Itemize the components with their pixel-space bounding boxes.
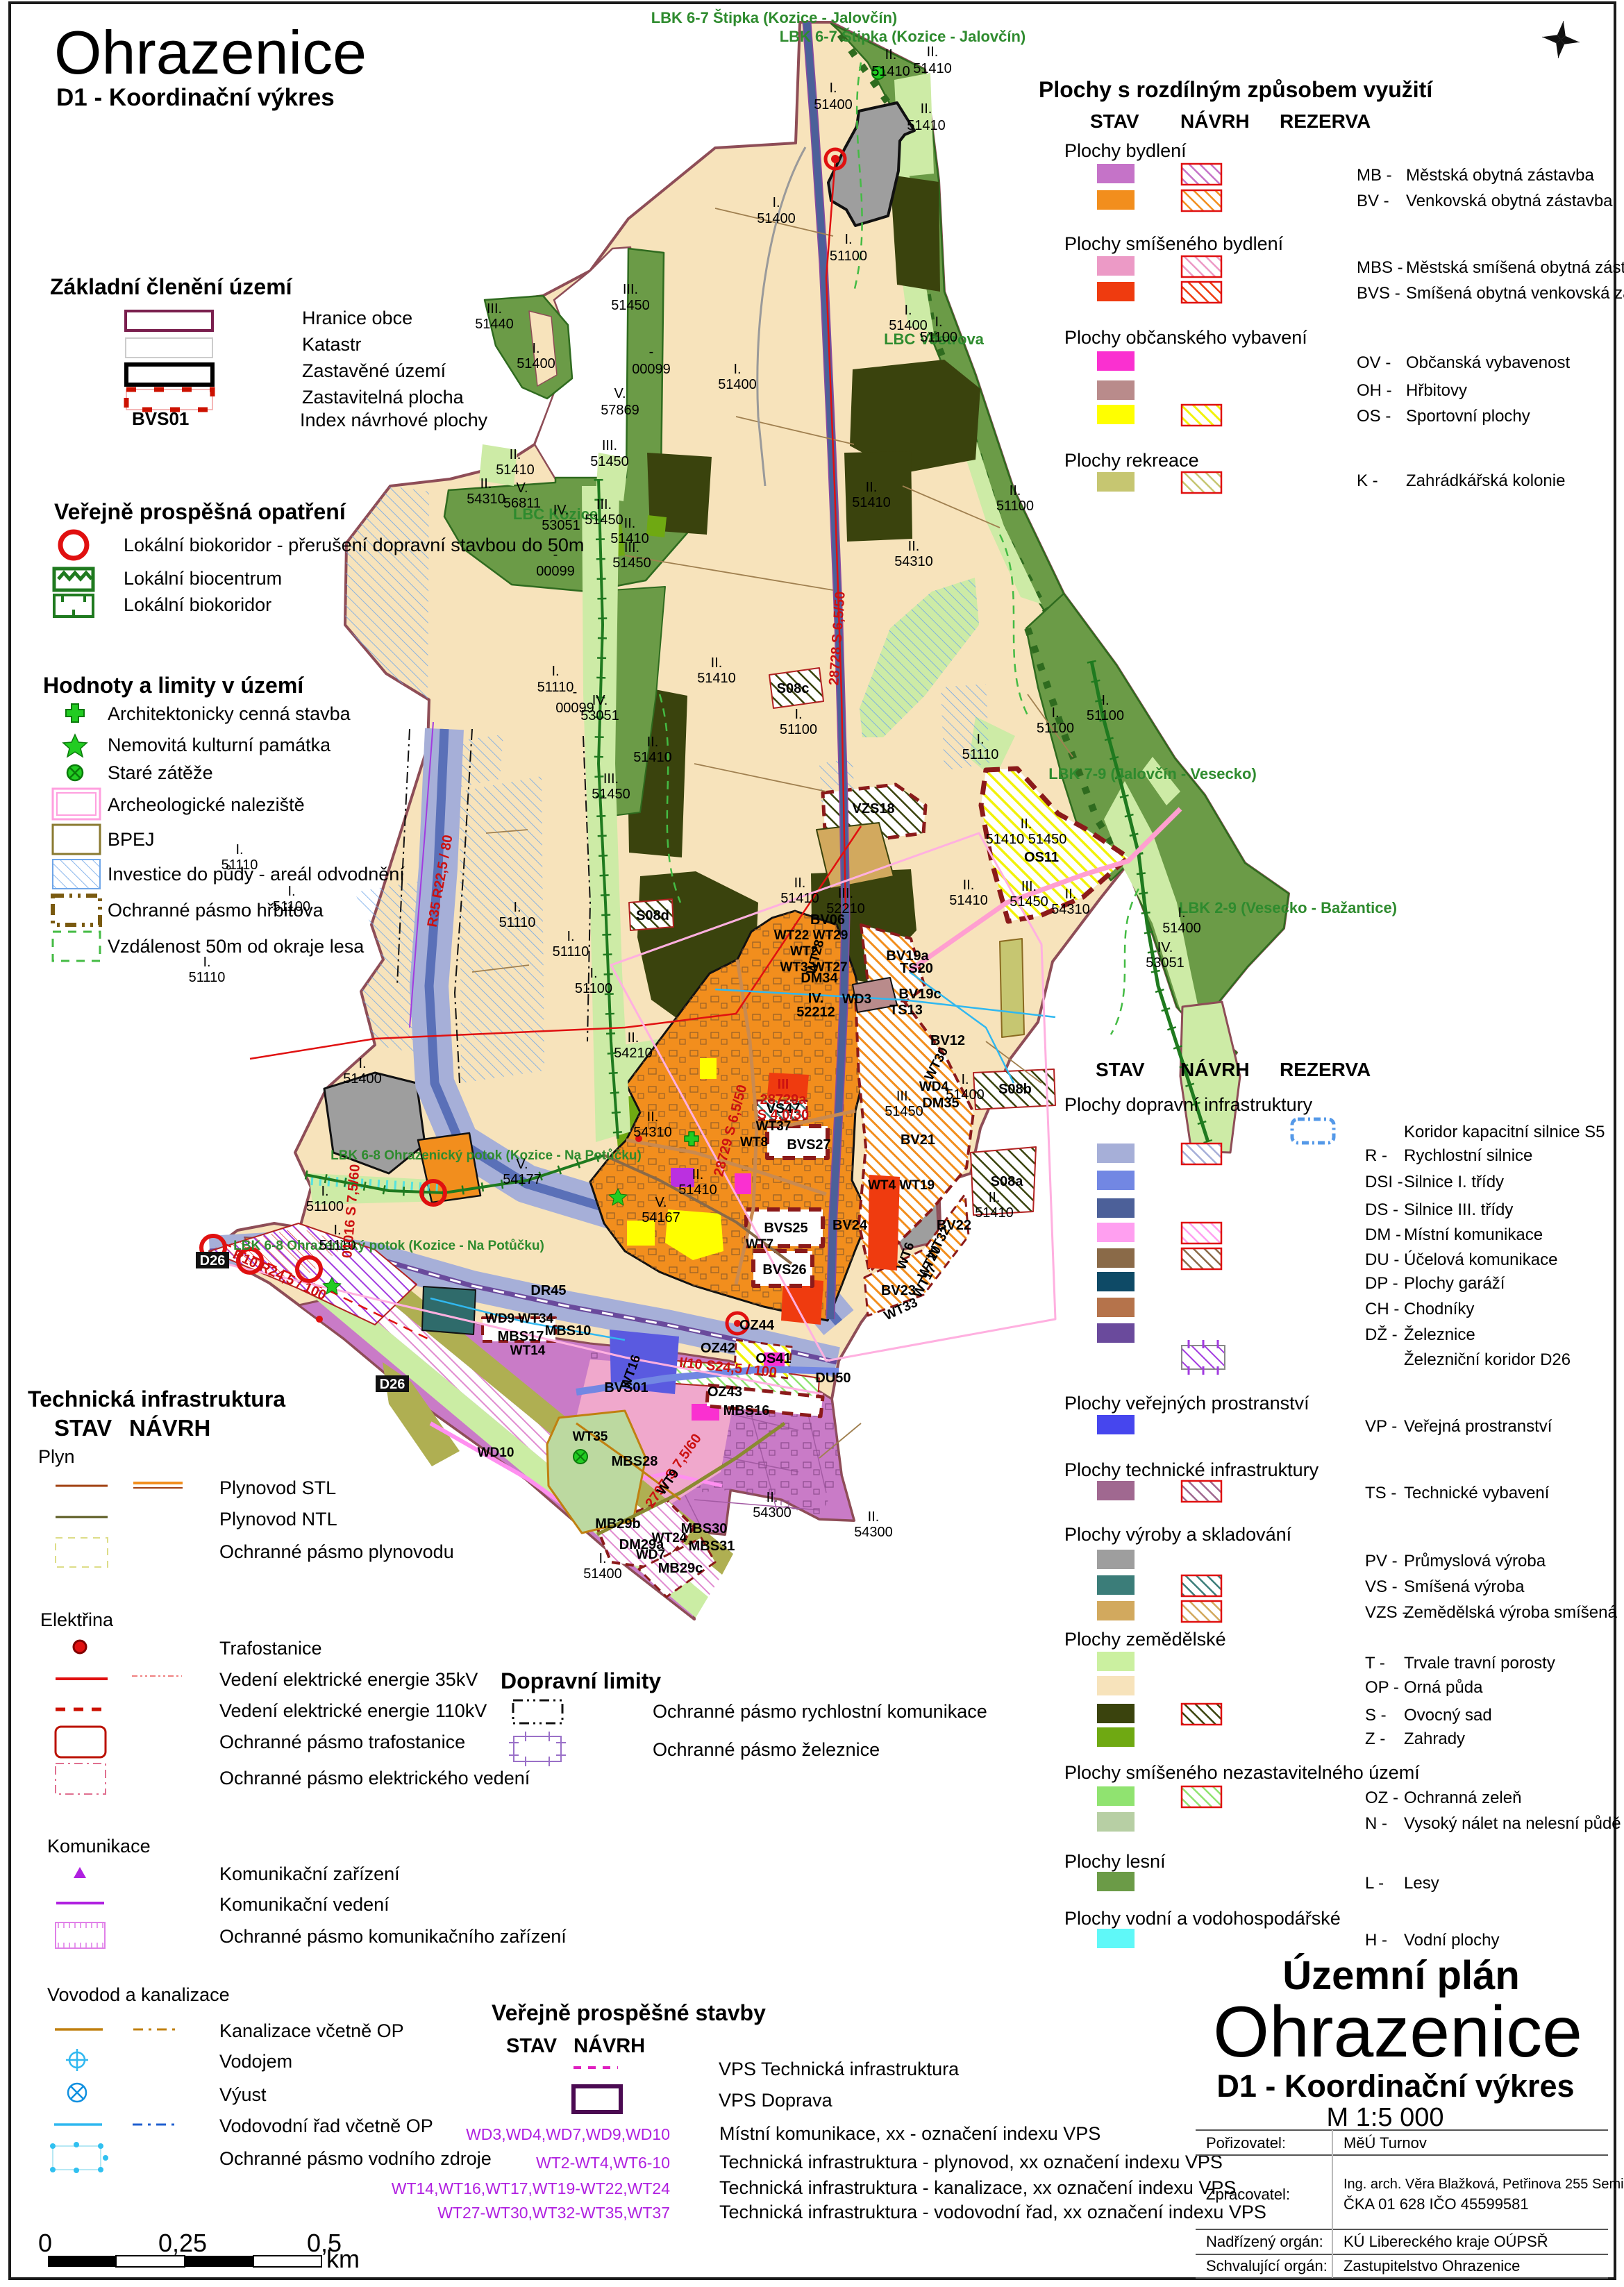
svg-text:D26: D26	[200, 1253, 226, 1268]
svg-text:II.: II.	[628, 1030, 639, 1046]
svg-text:Technická infrastruktura - vod: Technická infrastruktura - vodovodní řad…	[719, 2202, 1266, 2222]
svg-text:MB29b: MB29b	[595, 1516, 641, 1532]
svg-text:51400: 51400	[1162, 921, 1201, 936]
svg-text:Plochy zemědělské: Plochy zemědělské	[1064, 1629, 1226, 1650]
svg-text:Orná půda: Orná půda	[1404, 1678, 1483, 1697]
svg-text:III.: III.	[623, 282, 638, 297]
svg-text:Lokální biokoridor: Lokální biokoridor	[124, 594, 271, 615]
svg-text:53051: 53051	[1146, 955, 1184, 971]
svg-text:S08d: S08d	[636, 908, 669, 923]
svg-text:-: -	[573, 685, 578, 700]
svg-text:51110: 51110	[189, 970, 226, 985]
svg-text:II.: II.	[692, 1167, 704, 1182]
svg-text:III.: III.	[896, 1089, 912, 1104]
svg-text:51450: 51450	[611, 298, 650, 313]
svg-text:DSI -: DSI -	[1365, 1173, 1403, 1191]
svg-text:51400: 51400	[343, 1071, 382, 1087]
svg-text:BVS25: BVS25	[764, 1221, 807, 1236]
svg-text:MBS30: MBS30	[681, 1521, 728, 1536]
svg-text:Plynovod NTL: Plynovod NTL	[219, 1509, 337, 1530]
svg-text:WT4 WT19: WT4 WT19	[868, 1178, 935, 1193]
svg-text:Plochy rekreace: Plochy rekreace	[1064, 450, 1199, 471]
svg-text:Základní členění území: Základní členění území	[50, 274, 293, 299]
svg-text:II.: II.	[866, 480, 878, 495]
svg-text:Hřbitovy: Hřbitovy	[1406, 381, 1467, 400]
svg-text:00099: 00099	[536, 564, 575, 579]
svg-text:I.: I.	[358, 1056, 366, 1071]
svg-text:Komunikační zařízení: Komunikační zařízení	[219, 1863, 400, 1884]
svg-text:Ochranné pásmo železnice: Ochranné pásmo železnice	[653, 1739, 880, 1760]
svg-text:TS20: TS20	[900, 961, 933, 976]
svg-text:Staré zátěže: Staré zátěže	[108, 762, 213, 783]
svg-text:I.: I.	[1051, 705, 1059, 721]
svg-text:NÁVRH: NÁVRH	[1180, 1059, 1250, 1080]
svg-text:OZ44: OZ44	[739, 1318, 775, 1333]
svg-text:D1 - Koordinační výkres: D1 - Koordinační výkres	[1216, 2068, 1574, 2104]
svg-text:Plochy smíšeného nezastaviteln: Plochy smíšeného nezastavitelného území	[1064, 1762, 1420, 1783]
svg-text:Trvale travní porosty: Trvale travní porosty	[1404, 1654, 1555, 1673]
svg-text:I.: I.	[321, 1184, 328, 1199]
svg-text:54167: 54167	[642, 1210, 680, 1225]
svg-text:BVS01: BVS01	[132, 408, 189, 429]
svg-text:53051: 53051	[542, 518, 580, 533]
svg-text:Ochranné pásmo hřbitova: Ochranné pásmo hřbitova	[108, 900, 324, 921]
svg-text:D26: D26	[380, 1377, 405, 1392]
svg-text:III.: III.	[603, 771, 619, 787]
svg-text:0: 0	[38, 2229, 52, 2257]
svg-text:Vysoký nálet na nelesní půdě: Vysoký nálet na nelesní půdě	[1404, 1814, 1621, 1833]
svg-text:OP -: OP -	[1365, 1678, 1399, 1697]
svg-text:III.: III.	[1021, 879, 1037, 894]
svg-text:I.: I.	[532, 341, 539, 356]
svg-text:L -: L -	[1365, 1874, 1384, 1893]
svg-text:51410: 51410	[496, 462, 535, 478]
svg-text:Účelová komunikace: Účelová komunikace	[1404, 1250, 1557, 1269]
svg-text:PV -: PV -	[1365, 1552, 1398, 1570]
svg-text:I.: I.	[598, 1551, 606, 1566]
svg-text:M 1:5 000: M 1:5 000	[1327, 2103, 1444, 2132]
svg-text:Komunikace: Komunikace	[47, 1836, 151, 1857]
svg-text:II.: II.	[1021, 816, 1032, 832]
svg-text:I.: I.	[513, 900, 521, 915]
svg-text:Rychlostní silnice: Rychlostní silnice	[1404, 1146, 1532, 1165]
svg-text:VZS -: VZS -	[1365, 1603, 1407, 1622]
svg-text:51110: 51110	[553, 944, 589, 960]
svg-text:Plochy garáží: Plochy garáží	[1404, 1274, 1505, 1293]
svg-text:R -: R -	[1365, 1146, 1387, 1165]
svg-text:Technická infrastruktura - kan: Technická infrastruktura - kanalizace, x…	[719, 2177, 1236, 2198]
svg-text:II.: II.	[908, 539, 920, 554]
svg-text:I.: I.	[961, 1072, 969, 1087]
svg-text:I.: I.	[844, 232, 852, 247]
svg-text:I.: I.	[203, 955, 210, 970]
svg-text:Vzdálenost 50m od okraje lesa: Vzdálenost 50m od okraje lesa	[108, 936, 365, 957]
svg-text:51400: 51400	[889, 318, 928, 333]
svg-text:Průmyslová výroba: Průmyslová výroba	[1404, 1552, 1546, 1570]
svg-text:BV -: BV -	[1357, 192, 1389, 210]
svg-text:DS -: DS -	[1365, 1200, 1398, 1219]
svg-text:MěÚ Turnov: MěÚ Turnov	[1343, 2134, 1427, 2152]
svg-text:I.: I.	[551, 664, 559, 679]
svg-text:51440: 51440	[475, 317, 514, 332]
svg-text:BV06: BV06	[810, 912, 845, 928]
svg-text:Nemovitá kulturní památka: Nemovitá kulturní památka	[108, 735, 331, 755]
svg-text:I.: I.	[1101, 693, 1109, 708]
svg-text:Hodnoty a limity v území: Hodnoty a limity v území	[43, 673, 304, 698]
svg-text:Plochy technické infrastruktur: Plochy technické infrastruktury	[1064, 1459, 1319, 1480]
svg-text:II.: II.	[647, 1109, 659, 1125]
svg-text:Ochranné pásmo rychlostní komu: Ochranné pásmo rychlostní komunikace	[653, 1701, 987, 1722]
svg-text:III.: III.	[487, 301, 502, 317]
svg-text:51410: 51410	[871, 64, 910, 79]
svg-text:LBK 6-7 Štipka (Kozice - Jalov: LBK 6-7 Štipka (Kozice - Jalovčín)	[651, 9, 898, 26]
svg-text:Zastavěné území: Zastavěné území	[302, 360, 446, 381]
svg-text:Plochy lesní: Plochy lesní	[1064, 1851, 1166, 1872]
svg-text:Plochy bydlení: Plochy bydlení	[1064, 140, 1187, 161]
svg-text:II.: II.	[963, 878, 975, 893]
svg-text:I.: I.	[904, 303, 912, 318]
svg-text:Zemědělská výroba smíšená: Zemědělská výroba smíšená	[1404, 1603, 1617, 1622]
svg-text:Zahrady: Zahrady	[1404, 1729, 1465, 1748]
svg-text:OZ42: OZ42	[701, 1341, 735, 1356]
svg-text:51410: 51410	[697, 671, 736, 686]
svg-text:V.: V.	[655, 1195, 667, 1210]
svg-text:II.: II.	[1065, 887, 1077, 902]
svg-text:MBS31: MBS31	[689, 1539, 735, 1554]
svg-text:Místní komunikace: Místní komunikace	[1404, 1225, 1543, 1244]
svg-text:51100: 51100	[780, 722, 817, 737]
svg-text:III.: III.	[596, 497, 612, 512]
svg-text:Výust: Výust	[219, 2084, 267, 2105]
svg-text:51410: 51410	[780, 891, 819, 906]
svg-text:Místní komunikace, xx - označe: Místní komunikace, xx - označení indexu …	[719, 2123, 1100, 2144]
svg-text:DP -: DP -	[1365, 1274, 1398, 1293]
svg-text:51100: 51100	[830, 249, 867, 264]
svg-text:Venkovská obytná zástavba: Venkovská obytná zástavba	[1406, 192, 1613, 210]
svg-text:Ochranné pásmo komunikačního z: Ochranné pásmo komunikačního zařízení	[219, 1926, 567, 1947]
svg-text:LBK 7-9 (Jalovčín - Vesecko): LBK 7-9 (Jalovčín - Vesecko)	[1048, 765, 1257, 782]
svg-text:51100: 51100	[575, 981, 612, 996]
svg-text:51400: 51400	[814, 97, 853, 112]
svg-text:OV -: OV -	[1357, 353, 1391, 372]
svg-text:I.: I.	[567, 929, 574, 944]
svg-text:V.: V.	[516, 480, 528, 496]
svg-text:Vedení elektrické energie 35k: Vedení elektrické energie 35kV	[219, 1669, 478, 1690]
svg-text:Plochy smíšeného bydlení: Plochy smíšeného bydlení	[1064, 233, 1284, 254]
svg-text:00099: 00099	[632, 362, 671, 377]
svg-text:II.: II.	[1010, 483, 1021, 499]
svg-text:Zpracovatel:: Zpracovatel:	[1206, 2186, 1290, 2203]
svg-text:Ohrazenice: Ohrazenice	[54, 18, 367, 87]
svg-text:BVS26: BVS26	[762, 1262, 806, 1277]
svg-text:Železnice: Železnice	[1404, 1325, 1475, 1344]
svg-text:51100: 51100	[996, 499, 1034, 514]
svg-text:Ochranná zeleň: Ochranná zeleň	[1404, 1788, 1521, 1807]
svg-text:MBS17: MBS17	[498, 1329, 544, 1344]
svg-text:V.: V.	[614, 386, 626, 401]
svg-text:Plynovod STL: Plynovod STL	[219, 1477, 336, 1498]
svg-text:WD3,WD4,WD7,WD9,WD10: WD3,WD4,WD7,WD9,WD10	[466, 2125, 670, 2143]
svg-text:I.: I.	[794, 707, 802, 722]
svg-text:Veřejně prospěšná opatření: Veřejně prospěšná opatření	[54, 499, 346, 524]
svg-text:I.: I.	[935, 315, 942, 330]
svg-text:51400: 51400	[757, 211, 796, 226]
svg-text:Plyn: Plyn	[38, 1446, 75, 1467]
svg-text:I.: I.	[333, 1223, 341, 1238]
svg-text:VPS Technická infrastruktura: VPS Technická infrastruktura	[719, 2059, 960, 2079]
svg-text:WD9 WT34: WD9 WT34	[485, 1312, 554, 1326]
svg-text:II.: II.	[921, 101, 932, 117]
svg-text:T -: T -	[1365, 1654, 1385, 1673]
svg-text:DR45: DR45	[530, 1283, 566, 1298]
svg-text:Schvalující orgán:: Schvalující orgán:	[1206, 2257, 1328, 2275]
svg-text:Ohrazenice: Ohrazenice	[1213, 1992, 1582, 2072]
svg-text:Ochranné pásmo elektrického ve: Ochranné pásmo elektrického vedení	[219, 1768, 530, 1788]
svg-text:NÁVRH: NÁVRH	[129, 1415, 210, 1441]
svg-text:Městská smíšená obytná zástavb: Městská smíšená obytná zástavba	[1406, 258, 1624, 277]
svg-text:II.: II.	[868, 1509, 880, 1525]
svg-text:IV.: IV.	[1157, 940, 1173, 955]
svg-text:Nadřízený orgán:: Nadřízený orgán:	[1206, 2233, 1323, 2250]
svg-text:Veřejně prospěšné stavby: Veřejně prospěšné stavby	[492, 2000, 766, 2025]
svg-text:I.: I.	[235, 842, 243, 857]
svg-text:DU50: DU50	[815, 1371, 851, 1386]
svg-text:51450: 51450	[585, 512, 623, 528]
svg-text:Občanská vybavenost: Občanská vybavenost	[1406, 353, 1570, 372]
svg-text:MB -: MB -	[1357, 166, 1392, 185]
svg-text:I.: I.	[976, 732, 984, 747]
svg-text:OS -: OS -	[1357, 407, 1391, 426]
svg-text:51110: 51110	[537, 680, 574, 695]
svg-text:Komunikační vedení: Komunikační vedení	[219, 1894, 390, 1915]
svg-text:BV24: BV24	[832, 1218, 868, 1233]
svg-text:I.: I.	[589, 966, 597, 981]
svg-text:Dopravní limity: Dopravní limity	[501, 1668, 661, 1693]
svg-text:OS11: OS11	[1024, 850, 1059, 865]
svg-text:54177: 54177	[503, 1172, 542, 1187]
svg-text:Lokální biocentrum: Lokální biocentrum	[124, 568, 282, 589]
svg-text:51410: 51410	[678, 1182, 717, 1198]
svg-text:BV19c: BV19c	[898, 987, 941, 1002]
svg-text:Archeologické naleziště: Archeologické naleziště	[108, 794, 305, 815]
svg-text:Vodní plochy: Vodní plochy	[1404, 1931, 1499, 1950]
svg-text:S08c: S08c	[777, 681, 810, 696]
svg-text:54310: 54310	[894, 554, 933, 569]
svg-text:52212: 52212	[796, 1005, 835, 1020]
svg-text:54210: 54210	[614, 1046, 653, 1061]
svg-text:53051: 53051	[580, 708, 619, 723]
svg-text:MB29c: MB29c	[658, 1561, 703, 1576]
svg-text:II.: II.	[510, 447, 521, 462]
svg-text:Plochy veřejných prostranství: Plochy veřejných prostranství	[1064, 1393, 1309, 1414]
svg-text:WT24: WT24	[652, 1531, 687, 1545]
svg-text:BVS27: BVS27	[787, 1137, 830, 1153]
svg-text:II.: II.	[711, 655, 723, 671]
svg-text:Investice do půdy - areál odvo: Investice do půdy - areál odvodnění	[108, 864, 405, 885]
svg-text:STAV: STAV	[54, 1415, 112, 1441]
svg-text:51100: 51100	[1037, 721, 1074, 736]
svg-text:II.: II.	[989, 1190, 1001, 1205]
svg-text:VPS Doprava: VPS Doprava	[719, 2090, 833, 2111]
svg-text:CH -: CH -	[1365, 1300, 1399, 1318]
svg-text:Chodníky: Chodníky	[1404, 1300, 1474, 1318]
svg-text:I.: I.	[733, 362, 741, 377]
svg-text:V.: V.	[516, 1157, 528, 1172]
svg-text:K -: K -	[1357, 471, 1378, 490]
svg-text:Plochy dopravní infrastruktury: Plochy dopravní infrastruktury	[1064, 1094, 1313, 1115]
svg-text:51410: 51410	[949, 893, 988, 908]
svg-text:56811: 56811	[503, 496, 541, 511]
svg-text:STAV: STAV	[1090, 110, 1139, 132]
svg-text:WT8: WT8	[740, 1135, 768, 1150]
svg-text:Trafostanice: Trafostanice	[219, 1638, 322, 1659]
svg-text:IV.: IV.	[553, 503, 569, 518]
svg-text:III.: III.	[602, 438, 617, 453]
svg-text:57869: 57869	[601, 403, 639, 418]
svg-text:51450: 51450	[590, 454, 629, 469]
svg-text:51450: 51450	[612, 555, 651, 571]
svg-text:Vedení elektrické energie 110: Vedení elektrické energie 110kV	[219, 1700, 487, 1721]
svg-text:Ing. arch. Věra Blažková, Petř: Ing. arch. Věra Blažková, Petřinova 255 …	[1343, 2177, 1624, 2192]
svg-text:Elektřina: Elektřina	[40, 1609, 114, 1630]
svg-text:REZERVA: REZERVA	[1280, 110, 1371, 132]
svg-text:51410: 51410	[913, 61, 952, 76]
svg-text:OZ43: OZ43	[708, 1384, 742, 1400]
svg-text:WT14: WT14	[510, 1343, 546, 1358]
svg-text:Vovodod a kanalizace: Vovodod a kanalizace	[47, 1984, 230, 2005]
svg-text:LBK 6-8 Ohrazenický potok (Koz: LBK 6-8 Ohrazenický potok (Kozice - Na P…	[330, 1148, 642, 1163]
svg-text:Lesy: Lesy	[1404, 1874, 1439, 1893]
svg-text:-: -	[649, 344, 654, 360]
svg-text:Pořizovatel:: Pořizovatel:	[1206, 2134, 1286, 2152]
svg-text:MBS28: MBS28	[612, 1454, 658, 1469]
svg-text:Katastr: Katastr	[302, 334, 362, 355]
svg-text:I.: I.	[287, 884, 295, 899]
svg-text:Zastavitelná plocha: Zastavitelná plocha	[302, 387, 464, 408]
svg-text:VP -: VP -	[1365, 1417, 1397, 1436]
svg-text:Technické vybavení: Technické vybavení	[1404, 1484, 1550, 1502]
svg-text:BV12: BV12	[930, 1033, 965, 1048]
svg-text:Smíšená výroba: Smíšená výroba	[1404, 1577, 1525, 1596]
svg-text:Koridor kapacitní silnice S5: Koridor kapacitní silnice S5	[1404, 1123, 1605, 1141]
svg-text:Hranice obce: Hranice obce	[302, 308, 412, 328]
svg-text:III.: III.	[838, 886, 853, 901]
svg-text:51410: 51410	[633, 750, 672, 765]
svg-text:STAV: STAV	[506, 2035, 558, 2057]
svg-text:WT14,WT16,WT17,WT19-WT22,WT24: WT14,WT16,WT17,WT19-WT22,WT24	[392, 2179, 670, 2197]
svg-text:OZ -: OZ -	[1365, 1788, 1398, 1807]
svg-text:51400: 51400	[718, 377, 757, 392]
svg-text:TS -: TS -	[1365, 1484, 1396, 1502]
svg-text:LBK 2-9 (Vesecko - Bažantice): LBK 2-9 (Vesecko - Bažantice)	[1179, 899, 1397, 916]
svg-text:II.: II.	[624, 516, 636, 531]
svg-text:WT27-WT30,WT32-WT35,WT37: WT27-WT30,WT32-WT35,WT37	[437, 2204, 670, 2222]
svg-text:Ochranné pásmo plynovodu: Ochranné pásmo plynovodu	[219, 1541, 454, 1562]
svg-text:WD10: WD10	[478, 1446, 514, 1460]
svg-text:MBS -: MBS -	[1357, 258, 1403, 277]
svg-text:Technická infrastruktura: Technická infrastruktura	[28, 1387, 285, 1411]
svg-text:NÁVRH: NÁVRH	[1180, 110, 1250, 132]
svg-text:51450: 51450	[885, 1104, 923, 1119]
svg-text:II.: II.	[794, 876, 806, 891]
svg-text:KÚ Libereckého kraje OÚPSŘ: KÚ Libereckého kraje OÚPSŘ	[1343, 2233, 1548, 2250]
svg-text:51410: 51410	[907, 118, 946, 133]
svg-text:H -: H -	[1365, 1931, 1387, 1950]
svg-text:BPEJ: BPEJ	[108, 829, 155, 850]
svg-text:51410: 51410	[975, 1205, 1014, 1221]
svg-text:Městská obytná zástavba: Městská obytná zástavba	[1406, 166, 1594, 185]
svg-text:Ochranné pásmo vodního zdroje: Ochranné pásmo vodního zdroje	[219, 2148, 492, 2169]
svg-text:51110: 51110	[962, 747, 999, 762]
svg-text:Smíšená obytná venkovská zásta: Smíšená obytná venkovská zástavba	[1406, 284, 1624, 303]
svg-text:Zahrádkářská kolonie: Zahrádkářská kolonie	[1406, 471, 1565, 490]
svg-text:II.: II.	[480, 476, 492, 492]
svg-text:BV21: BV21	[901, 1132, 935, 1148]
svg-text:0,25: 0,25	[158, 2229, 207, 2257]
svg-text:I.: I.	[829, 81, 837, 96]
svg-text:WD3: WD3	[842, 992, 871, 1007]
svg-text:51100: 51100	[1087, 708, 1124, 723]
svg-text:Architektonicky cenná stavba: Architektonicky cenná stavba	[108, 703, 351, 724]
svg-text:51400: 51400	[583, 1566, 622, 1582]
svg-text:I.: I.	[1178, 905, 1185, 921]
svg-text:DM -: DM -	[1365, 1225, 1401, 1244]
svg-text:III: III	[778, 1077, 789, 1092]
svg-text:VZS18: VZS18	[852, 801, 894, 816]
svg-text:54310: 54310	[467, 492, 505, 507]
svg-text:S -: S -	[1365, 1706, 1387, 1725]
svg-text:51450: 51450	[1010, 894, 1048, 910]
svg-text:WT2-WT4,WT6-10: WT2-WT4,WT6-10	[536, 2154, 670, 2172]
svg-text:II.: II.	[647, 735, 659, 750]
svg-text:S08b: S08b	[998, 1082, 1032, 1097]
svg-text:WT35: WT35	[573, 1430, 608, 1444]
svg-text:51450: 51450	[592, 787, 630, 802]
svg-text:LBK 6-7 Štipka (Kozice - Jalov: LBK 6-7 Štipka (Kozice - Jalovčín)	[780, 28, 1026, 45]
svg-text:Vodojem: Vodojem	[219, 2051, 292, 2072]
svg-text:II.: II.	[927, 44, 939, 60]
svg-text:I.: I.	[772, 195, 780, 210]
svg-text:TS13: TS13	[889, 1003, 923, 1018]
svg-text:51410: 51410	[852, 495, 891, 510]
svg-text:BV23: BV23	[881, 1283, 916, 1298]
svg-text:Sportovní plochy: Sportovní plochy	[1406, 407, 1530, 426]
svg-text:WT22 WT29: WT22 WT29	[774, 928, 848, 943]
svg-text:WT7: WT7	[746, 1237, 773, 1252]
svg-text:IV.: IV.	[592, 693, 608, 708]
svg-text:Z -: Z -	[1365, 1729, 1385, 1748]
svg-text:II.: II.	[767, 1490, 778, 1505]
svg-text:II.: II.	[885, 47, 897, 62]
svg-text:Lokální biokoridor - přerušen: Lokální biokoridor - přerušení dopravní …	[124, 535, 584, 555]
svg-text:51400: 51400	[517, 356, 555, 371]
svg-text:IV.: IV.	[808, 991, 824, 1006]
svg-text:km: km	[326, 2245, 360, 2273]
svg-text:Index návrhové plochy: Index návrhové plochy	[300, 410, 488, 430]
svg-text:Plochy výroby a skladování: Plochy výroby a skladování	[1064, 1524, 1292, 1545]
svg-text:MBS16: MBS16	[723, 1403, 770, 1418]
svg-text:Kanalizace včetně OP: Kanalizace včetně OP	[219, 2020, 404, 2041]
svg-text:Ochranné pásmo trafostanice: Ochranné pásmo trafostanice	[219, 1732, 465, 1752]
svg-text:54310: 54310	[1051, 902, 1090, 917]
svg-text:OH -: OH -	[1357, 381, 1392, 400]
svg-text:54300: 54300	[854, 1525, 893, 1540]
svg-text:VS -: VS -	[1365, 1577, 1398, 1596]
svg-text:NÁVRH: NÁVRH	[574, 2034, 645, 2057]
svg-text:Veřejná prostranství: Veřejná prostranství	[1404, 1417, 1552, 1436]
svg-text:28729a: 28729a	[760, 1092, 807, 1107]
svg-text:REZERVA: REZERVA	[1280, 1059, 1371, 1080]
